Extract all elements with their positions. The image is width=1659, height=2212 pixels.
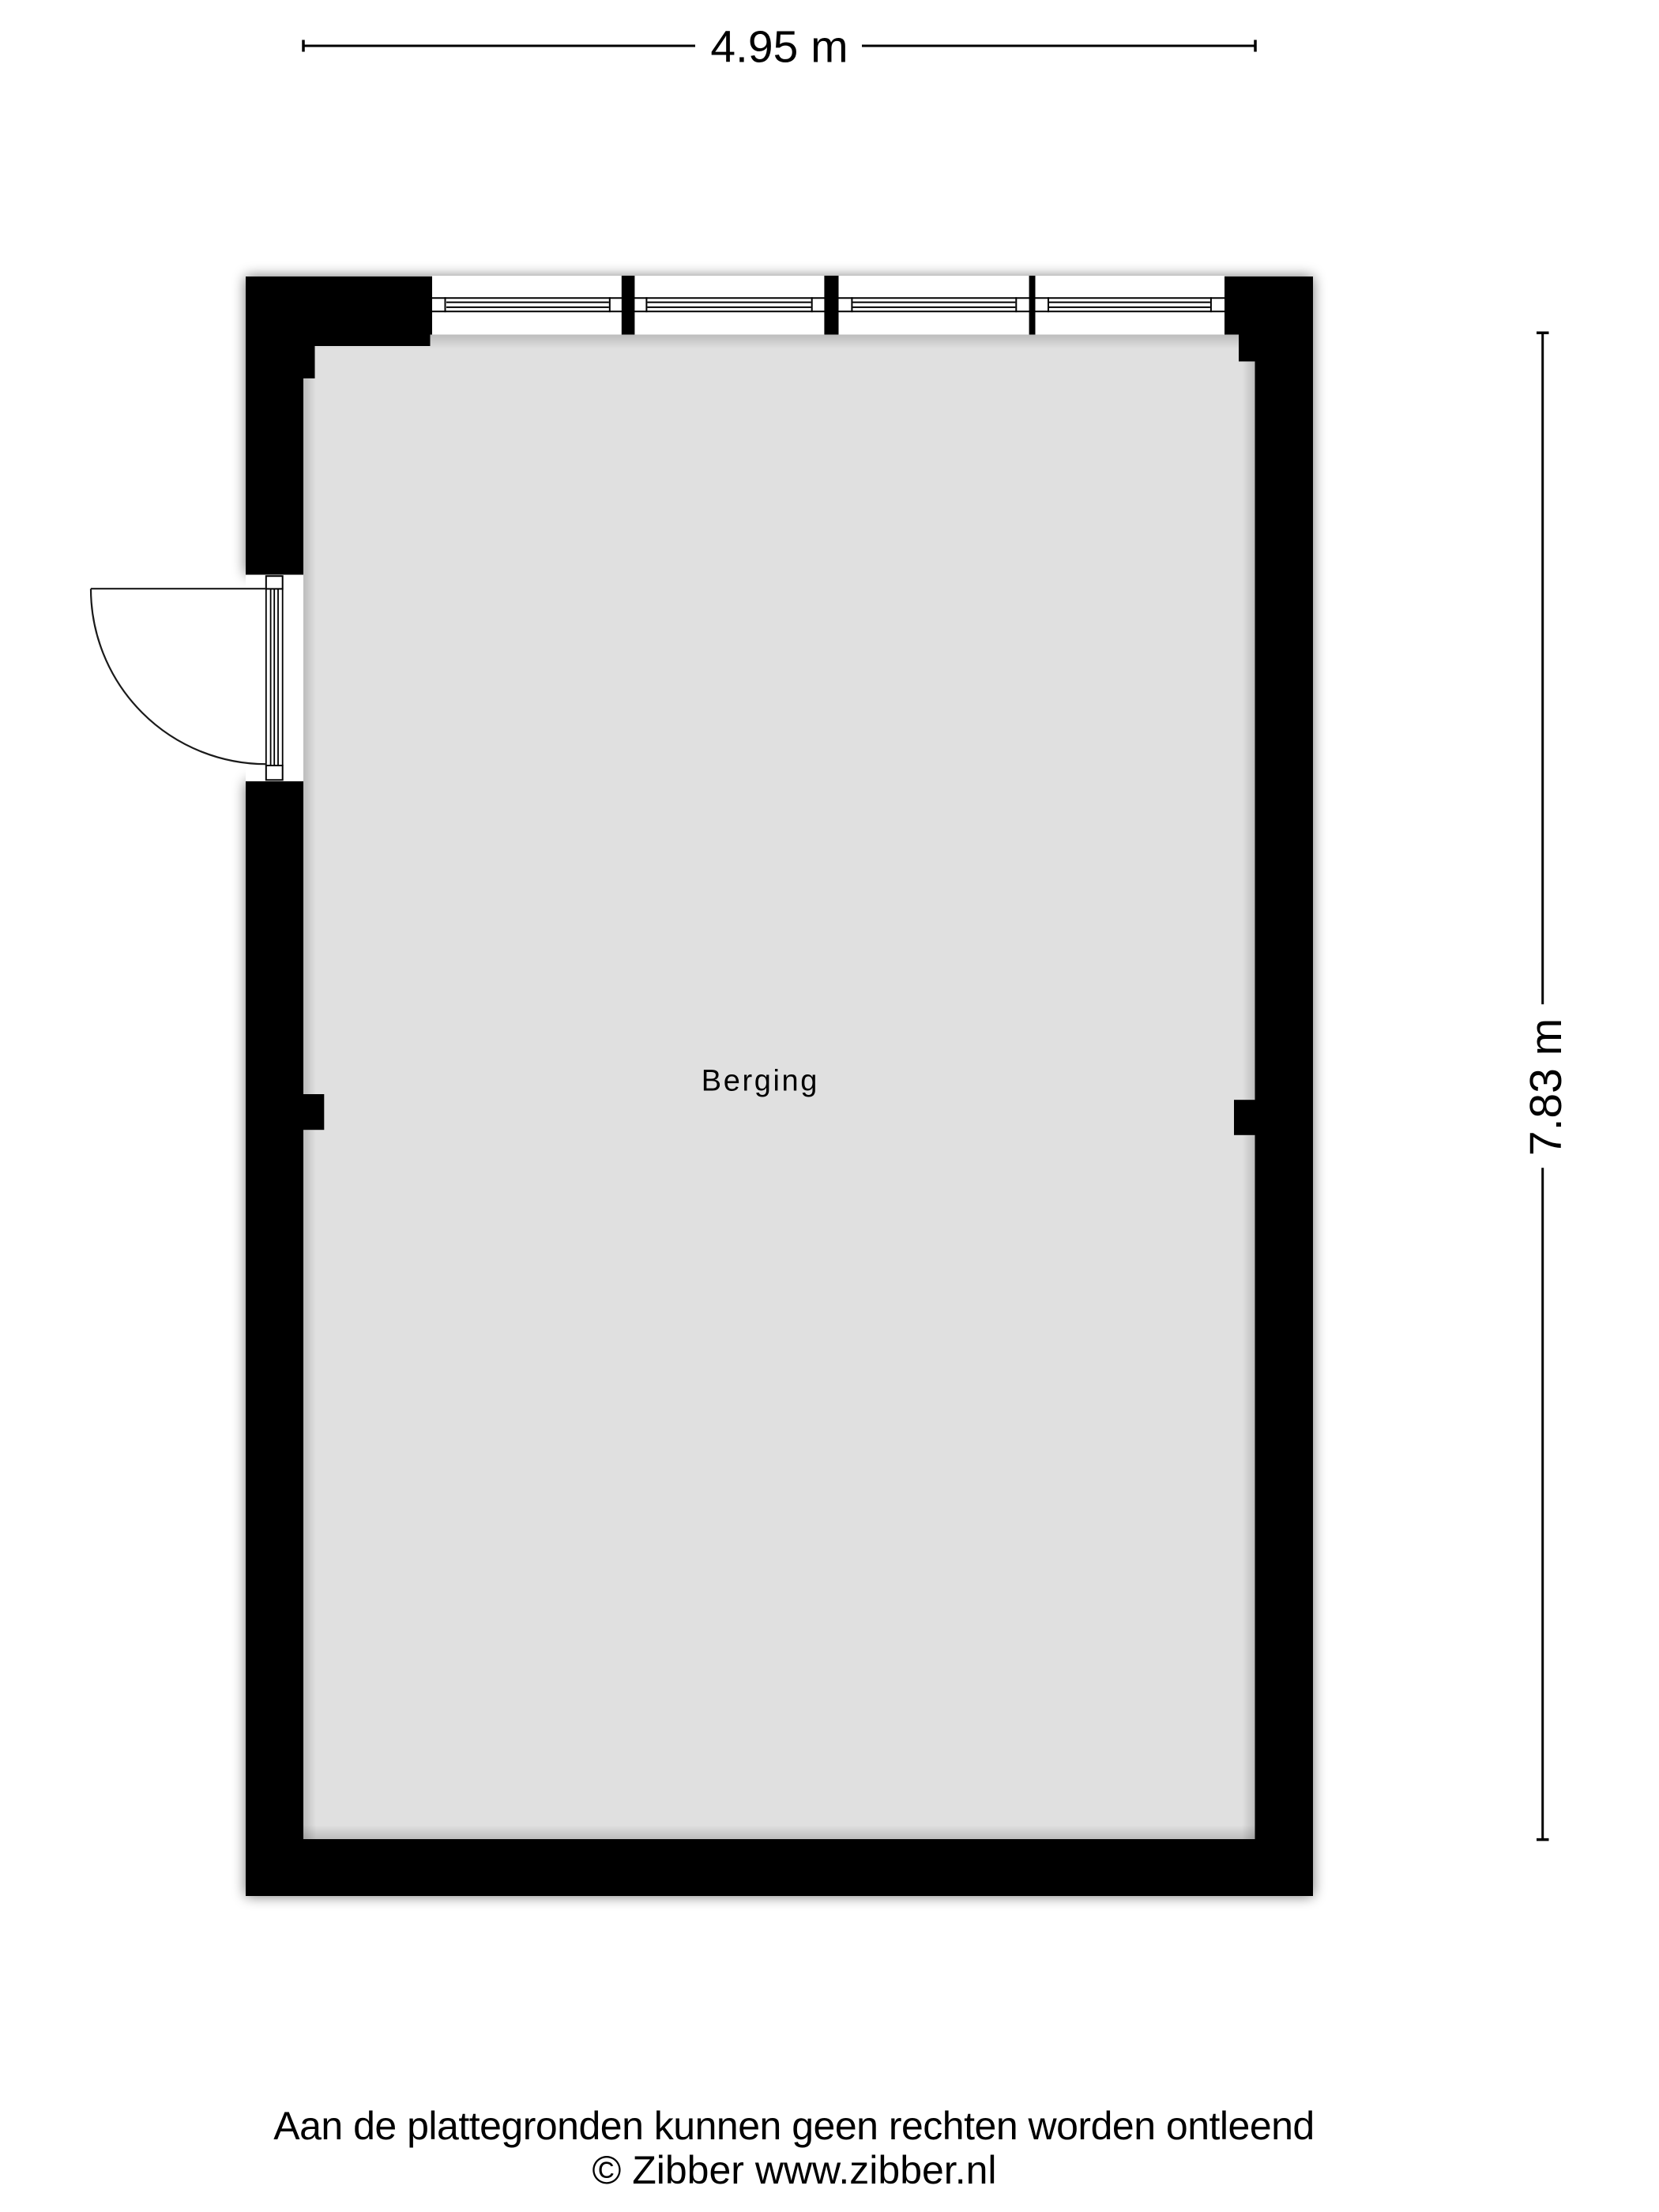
svg-text:Aan de plattegronden kunnen ge: Aan de plattegronden kunnen geen rechten… [273,2104,1315,2148]
svg-text:4.95 m: 4.95 m [710,22,848,73]
svg-text:7.83 m: 7.83 m [1521,1018,1571,1156]
svg-text:Berging: Berging [702,1065,819,1098]
svg-text:© Zibber www.zibber.nl: © Zibber www.zibber.nl [592,2148,996,2192]
